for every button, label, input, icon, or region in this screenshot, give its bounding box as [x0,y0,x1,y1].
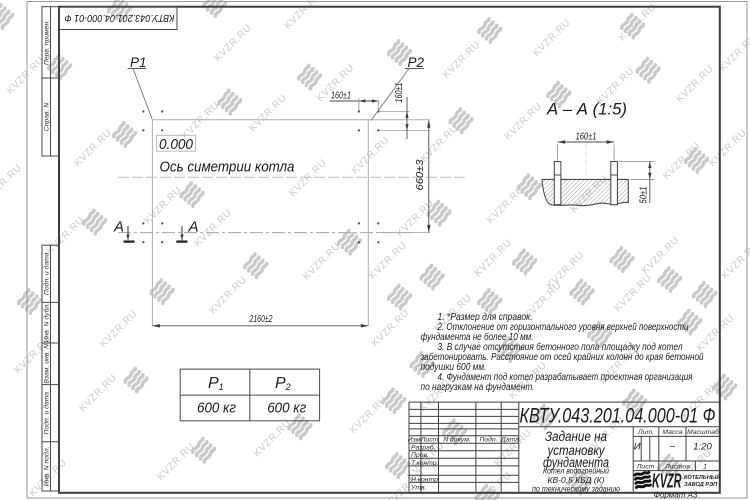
svg-text:по техническому заданию: по техническому заданию [532,484,620,494]
svg-text:KVZR.RU: KVZR.RU [441,39,483,81]
svg-text:Дата: Дата [500,437,519,444]
svg-text:Перв. примен.: Перв. примен. [44,20,51,65]
svg-text:КОТЕЛЬНЫЙ: КОТЕЛЬНЫЙ [684,473,721,481]
svg-text:КВТУ.043.201.04.000-01 Ф: КВТУ.043.201.04.000-01 Ф [64,12,174,23]
svg-text:Т.контр.: Т.контр. [411,460,439,467]
svg-text:KVZR.RU: KVZR.RU [720,240,750,282]
svg-text:Масштаб: Масштаб [687,428,720,436]
svg-text:Подп.: Подп. [479,436,497,444]
svg-text:А – А (1:5): А – А (1:5) [546,100,627,118]
svg-text:KVZR.RU: KVZR.RU [282,0,324,32]
svg-text:1: 1 [703,463,707,470]
svg-text:KVZR.RU: KVZR.RU [192,207,234,249]
svg-text:KVZR.RU: KVZR.RU [707,127,749,169]
svg-text:Подп. и дата: Подп. и дата [43,392,51,435]
svg-text:KVZR.RU: KVZR.RU [212,22,254,64]
svg-text:KVZR.RU: KVZR.RU [612,272,654,314]
svg-text:KVZR.RU: KVZR.RU [717,32,750,74]
svg-text:160±1: 160±1 [394,83,405,103]
svg-text:Взам. инв. N: Взам. инв. N [44,344,51,384]
svg-text:ЗАВОД РЭП: ЗАВОД РЭП [684,482,718,488]
svg-text:по нагрузкам на фундамент.: по нагрузкам на фундамент. [421,381,535,393]
svg-text:KVZR.RU: KVZR.RU [72,127,114,169]
svg-text:0.000: 0.000 [159,136,194,153]
svg-text:N докум.: N докум. [443,436,471,444]
svg-text:KVZR.RU: KVZR.RU [252,418,294,460]
svg-text:KVZR.RU: KVZR.RU [503,101,545,143]
svg-text:KVZR.RU: KVZR.RU [142,185,184,227]
svg-text:KVZR.RU: KVZR.RU [661,140,703,182]
svg-text:А: А [113,219,124,236]
svg-text:2160±2: 2160±2 [249,314,273,325]
svg-text:KVZR.RU: KVZR.RU [472,237,514,279]
svg-text:P1: P1 [130,55,147,70]
svg-text:KVZR.RU: KVZR.RU [98,308,140,350]
svg-text:KVZR.RU: KVZR.RU [77,372,119,414]
svg-text:А: А [188,219,199,236]
svg-text:KVZR.RU: KVZR.RU [350,135,392,177]
svg-text:KVZR.RU: KVZR.RU [674,63,716,105]
svg-text:Справ. N: Справ. N [44,103,51,132]
svg-text:КВТУ.043.201.04.000-01 Ф: КВТУ.043.201.04.000-01 Ф [520,404,716,427]
svg-text:KVZR.RU: KVZR.RU [45,215,87,257]
svg-text:Масса: Масса [662,429,682,436]
svg-text:50±1: 50±1 [638,187,649,204]
svg-text:KVZR: KVZR [652,470,682,493]
svg-text:KVZR.RU: KVZR.RU [207,275,249,317]
svg-text:KVZR.RU: KVZR.RU [5,55,47,97]
svg-text:KVZR.RU: KVZR.RU [492,427,534,469]
svg-text:P2: P2 [275,375,291,392]
svg-text:1:20: 1:20 [693,442,712,453]
svg-text:KVZR.RU: KVZR.RU [247,92,289,134]
svg-text:И: И [634,442,641,453]
svg-text:160±1: 160±1 [576,131,597,142]
svg-text:KVZR.RU: KVZR.RU [419,123,461,165]
svg-text:KVZR.RU: KVZR.RU [0,162,24,204]
svg-text:Лит.: Лит. [637,429,654,436]
svg-text:KVZR.RU: KVZR.RU [301,241,343,283]
svg-text:P1: P1 [208,375,224,392]
svg-text:660±3: 660±3 [415,159,426,190]
svg-text:–: – [669,441,676,452]
svg-text:Инв. N подл.: Инв. N подл. [43,446,51,486]
svg-text:Формат А3: Формат А3 [654,491,698,500]
svg-text:Задание на: Задание на [545,429,607,444]
svg-text:Утв.: Утв. [410,485,427,492]
svg-text:KVZR.RU: KVZR.RU [640,235,682,277]
svg-text:Инв. N дубл.: Инв. N дубл. [43,303,51,342]
svg-text:KVZR.RU: KVZR.RU [395,198,437,240]
svg-text:Лист: Лист [420,437,439,444]
svg-text:P2: P2 [408,55,425,70]
svg-text:Н.контр.: Н.контр. [411,476,440,483]
svg-text:600 кг: 600 кг [197,400,237,417]
svg-text:Ось симетрии котла: Ось симетрии котла [160,160,295,176]
svg-text:Пров.: Пров. [411,452,429,459]
svg-text:KVZR.RU: KVZR.RU [367,240,409,282]
svg-text:Разраб.: Разраб. [411,444,436,452]
svg-text:KVZR.RU: KVZR.RU [531,17,573,59]
svg-text:KVZR.RU: KVZR.RU [485,184,527,226]
svg-text:Подп. и дата: Подп. и дата [43,252,51,295]
svg-text:160±1: 160±1 [331,90,351,101]
svg-text:600 кг: 600 кг [267,400,307,417]
svg-text:KVZR.RU: KVZR.RU [155,441,197,483]
svg-text:KVZR.RU: KVZR.RU [370,307,412,349]
